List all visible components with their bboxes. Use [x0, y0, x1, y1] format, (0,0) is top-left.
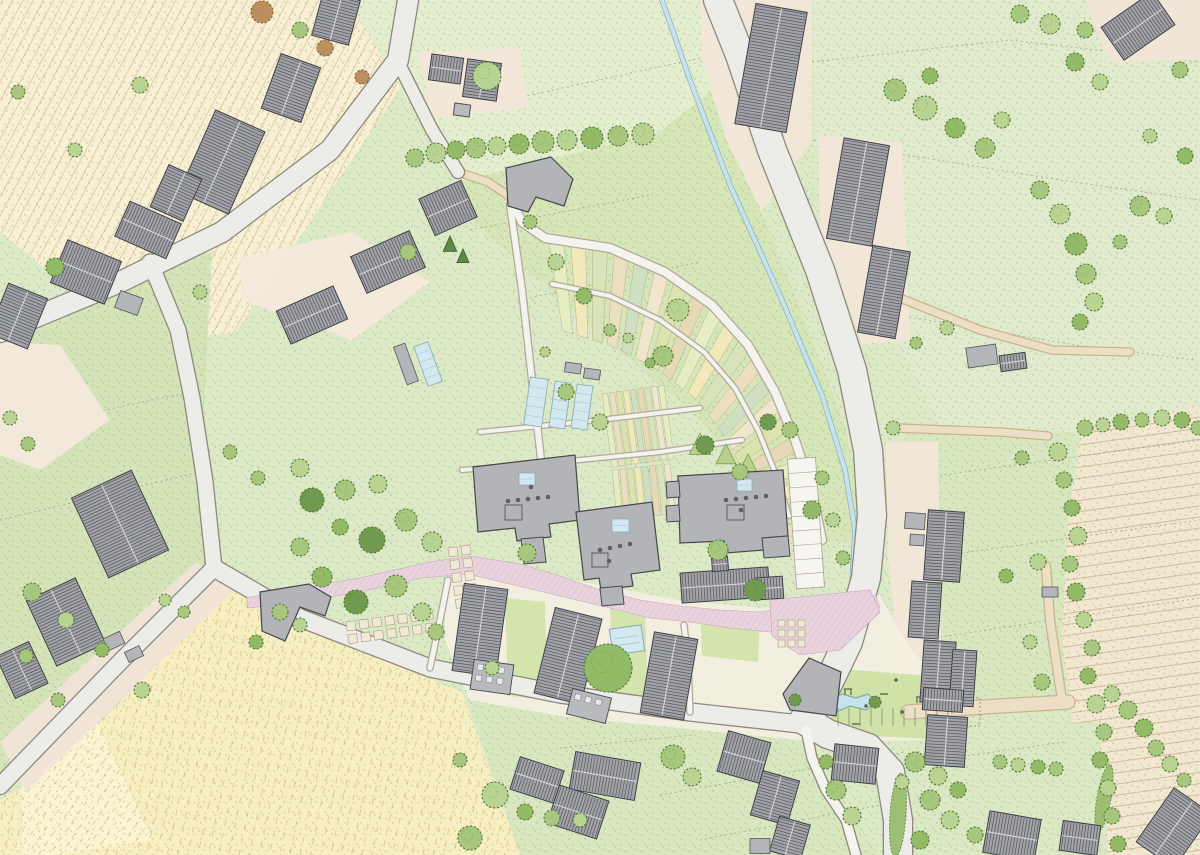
tree — [1064, 500, 1080, 516]
flat-roof-annex — [453, 103, 471, 117]
tree — [426, 143, 446, 163]
barn-building — [1059, 821, 1101, 855]
tree — [557, 130, 577, 150]
tree — [789, 694, 801, 706]
tree — [548, 254, 564, 270]
tree — [312, 567, 332, 587]
tree — [134, 682, 150, 698]
tree — [1040, 14, 1060, 34]
tree — [661, 745, 685, 769]
tree — [1096, 418, 1110, 432]
tree — [1143, 129, 1157, 143]
tree — [558, 384, 574, 400]
tree — [869, 696, 881, 708]
tree — [975, 138, 995, 158]
tree — [993, 755, 1007, 769]
tree — [1135, 413, 1149, 427]
shed — [583, 368, 600, 380]
tree — [1065, 233, 1087, 255]
rooflight — [506, 499, 511, 504]
tree — [1113, 235, 1127, 249]
tree — [994, 112, 1010, 128]
tree — [400, 244, 416, 260]
tree — [667, 299, 689, 321]
tree — [1148, 740, 1164, 756]
tree — [19, 649, 33, 663]
tree — [1100, 780, 1116, 796]
tree — [1172, 62, 1188, 78]
tree — [447, 141, 465, 159]
tree — [21, 437, 35, 451]
tree — [1069, 527, 1087, 545]
tree — [826, 513, 840, 527]
rooflight — [536, 496, 541, 501]
tree — [950, 782, 966, 798]
rooflight — [598, 548, 603, 553]
tree — [782, 422, 798, 438]
tree — [178, 606, 190, 618]
tree — [999, 569, 1013, 583]
shed — [564, 362, 581, 374]
tree — [473, 62, 501, 90]
tree — [608, 126, 628, 146]
tree — [317, 40, 333, 56]
rooflight — [754, 495, 759, 500]
tree — [886, 421, 900, 435]
tree — [1011, 758, 1025, 772]
tree — [95, 643, 109, 657]
tree — [23, 583, 41, 601]
tree — [708, 540, 728, 560]
tree — [1066, 53, 1084, 71]
tree — [422, 532, 442, 552]
tree — [1085, 293, 1103, 311]
shed — [750, 839, 770, 854]
shed — [966, 344, 998, 368]
tree — [58, 612, 74, 628]
tree — [1092, 752, 1108, 768]
tree — [223, 445, 237, 459]
tree — [920, 790, 940, 810]
tree — [744, 579, 766, 601]
tree — [1030, 554, 1046, 570]
tree — [300, 488, 324, 512]
tree — [193, 285, 207, 299]
tree — [1011, 5, 1029, 23]
tree — [272, 604, 288, 620]
tree — [910, 337, 922, 349]
tree — [1174, 412, 1190, 428]
tree — [509, 134, 529, 154]
tree — [581, 127, 603, 149]
tree — [576, 288, 592, 304]
tree — [544, 810, 560, 826]
tree — [1080, 668, 1096, 684]
tree — [344, 590, 368, 614]
tree — [1130, 196, 1150, 216]
tree — [1015, 451, 1029, 465]
tree — [815, 471, 829, 485]
rooflight — [744, 496, 749, 501]
tree — [395, 509, 417, 531]
tree — [632, 123, 654, 145]
tree — [1062, 556, 1078, 572]
tree — [905, 752, 925, 772]
tree — [482, 782, 508, 808]
rooflight — [546, 495, 551, 500]
tree — [249, 635, 263, 649]
tree — [518, 544, 536, 562]
tree — [1084, 640, 1100, 656]
tree — [251, 1, 273, 23]
shed — [910, 534, 925, 546]
tree — [884, 79, 906, 101]
tree — [335, 480, 355, 500]
barn-building — [922, 688, 963, 713]
tree — [355, 70, 369, 84]
tree — [1110, 836, 1126, 852]
tree — [584, 644, 632, 692]
tree — [1135, 719, 1153, 737]
tree — [406, 149, 424, 167]
tree — [1177, 148, 1193, 164]
tree — [945, 118, 965, 138]
tree — [1077, 22, 1093, 38]
rooflight — [529, 485, 534, 490]
tree — [1162, 756, 1178, 772]
tree — [922, 68, 938, 84]
tree — [1049, 443, 1067, 461]
tree — [1113, 414, 1129, 430]
tree — [895, 775, 909, 789]
rooflight — [764, 494, 769, 499]
tree — [929, 767, 947, 785]
tree — [645, 358, 655, 368]
tree — [1092, 74, 1108, 90]
rooflight — [724, 498, 729, 503]
playground-equipment — [894, 678, 898, 682]
tree — [940, 321, 954, 335]
tree — [11, 85, 25, 99]
rooflight — [618, 544, 623, 549]
tree — [573, 813, 587, 827]
tree — [466, 138, 486, 158]
tree — [1156, 208, 1172, 224]
rooflight — [608, 546, 613, 551]
rooflight — [734, 497, 739, 502]
tree — [453, 753, 467, 767]
tree — [488, 137, 506, 155]
playground-equipment — [864, 704, 868, 708]
rooflight — [628, 542, 633, 547]
tree — [428, 624, 444, 640]
tree — [683, 768, 701, 786]
tree — [1056, 472, 1072, 488]
tree — [291, 538, 309, 556]
tree — [1067, 583, 1085, 601]
tree — [1096, 724, 1112, 740]
barn-building — [428, 54, 463, 84]
tree — [941, 811, 959, 829]
tree — [732, 464, 748, 480]
tree — [1076, 612, 1092, 628]
tree — [1104, 808, 1120, 824]
tree — [291, 459, 309, 477]
tree — [293, 618, 307, 632]
rooflight — [526, 497, 531, 502]
tree — [760, 414, 776, 430]
tree — [1104, 686, 1120, 702]
tree — [369, 475, 387, 493]
tree — [1177, 773, 1191, 787]
tree — [1119, 701, 1137, 719]
rooflight — [739, 508, 744, 513]
tree — [159, 594, 171, 606]
tree — [68, 143, 82, 157]
tree — [251, 471, 265, 485]
tree — [332, 519, 348, 535]
tree — [3, 411, 17, 425]
tree — [1031, 181, 1049, 199]
tree — [1050, 204, 1070, 224]
tree — [1076, 264, 1096, 284]
tree — [843, 807, 861, 825]
tree — [653, 346, 673, 366]
tree — [819, 755, 833, 769]
tree — [458, 826, 482, 850]
tree — [46, 258, 64, 276]
tree — [1072, 314, 1088, 330]
barn-building — [924, 715, 967, 768]
tree — [359, 527, 385, 553]
tree — [51, 693, 65, 707]
barn-building — [831, 744, 879, 784]
tree — [532, 131, 554, 153]
barn-building — [999, 352, 1027, 371]
tree — [911, 831, 929, 849]
tree — [413, 603, 431, 621]
tree — [836, 551, 850, 565]
tree — [1034, 674, 1050, 690]
tree — [540, 347, 550, 357]
tree — [1049, 762, 1063, 776]
tree — [1154, 410, 1170, 426]
shed — [1042, 587, 1058, 597]
site-plan-svg — [0, 0, 1200, 855]
site-plan-map — [0, 0, 1200, 855]
tree — [913, 96, 937, 120]
tree — [623, 333, 633, 343]
tree — [1077, 420, 1093, 436]
barn-building — [908, 581, 942, 639]
tree — [292, 22, 308, 38]
tree — [385, 575, 407, 597]
rooflight — [516, 498, 521, 503]
tree — [523, 215, 537, 229]
tree — [696, 436, 714, 454]
tree — [485, 661, 499, 675]
tree — [1031, 760, 1045, 774]
tree — [604, 324, 616, 336]
playground-equipment — [900, 710, 904, 714]
tree — [592, 414, 608, 430]
tree — [132, 77, 148, 93]
tree — [826, 780, 846, 800]
shed — [904, 512, 925, 529]
barn-building — [924, 510, 965, 582]
rooflight — [607, 559, 612, 564]
tree — [517, 804, 533, 820]
tree — [967, 827, 983, 843]
tree — [1087, 695, 1105, 713]
tree — [1023, 635, 1037, 649]
tree — [803, 501, 821, 519]
raised-beds-east — [778, 620, 805, 647]
